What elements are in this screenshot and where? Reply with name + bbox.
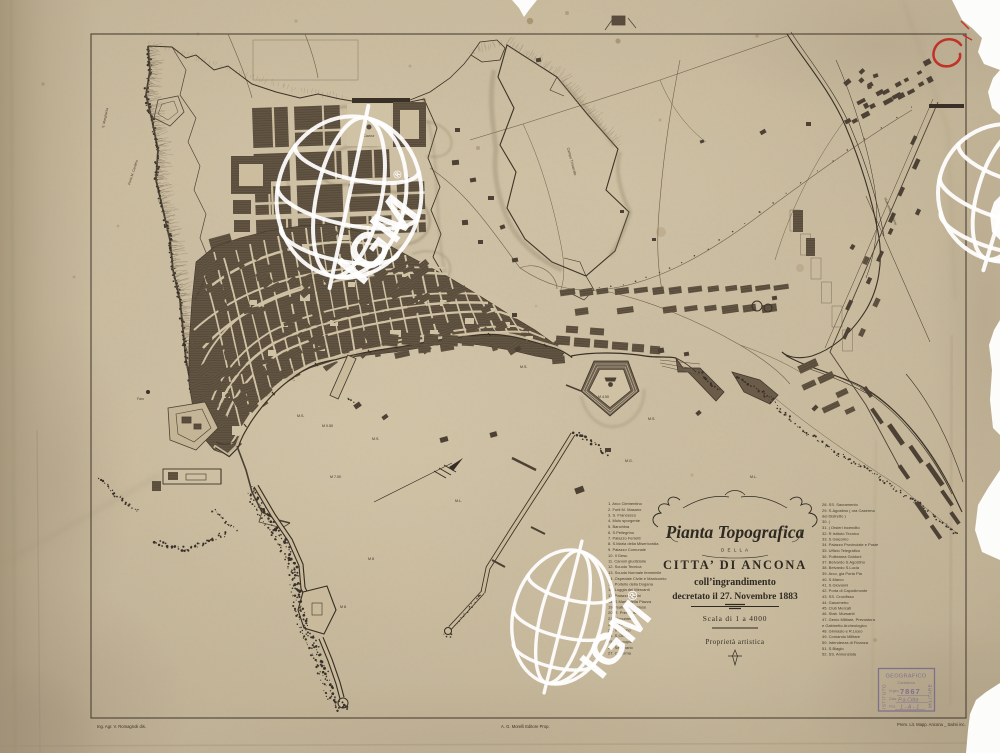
svg-text:N.gen.: N.gen. bbox=[889, 689, 900, 693]
svg-text:12. Scuola Tecnica: 12. Scuola Tecnica bbox=[608, 564, 642, 569]
svg-text:50. Intendenza di Finanza: 50. Intendenza di Finanza bbox=[822, 640, 869, 645]
svg-text:M.L.: M.L. bbox=[455, 499, 462, 503]
svg-text:35. Uffizio Telegrafico: 35. Uffizio Telegrafico bbox=[822, 548, 861, 553]
svg-text:M 0.50: M 0.50 bbox=[322, 424, 333, 428]
svg-text:M 4.50: M 4.50 bbox=[598, 395, 609, 399]
svg-text:CITTA’ DI ANCONA: CITTA’ DI ANCONA bbox=[663, 558, 807, 572]
svg-text:M.S.: M.S. bbox=[297, 414, 304, 418]
svg-text:decretato il 27. Novembre 1883: decretato il 27. Novembre 1883 bbox=[672, 592, 798, 602]
svg-text:M 7.00: M 7.00 bbox=[330, 475, 341, 479]
svg-text:5. Banchina: 5. Banchina bbox=[608, 524, 630, 529]
svg-text:37. Belvardo S.Agostino: 37. Belvardo S.Agostino bbox=[822, 560, 866, 565]
svg-text:M 8: M 8 bbox=[368, 557, 374, 561]
svg-text:47. Genio Militare, Prevostura: 47. Genio Militare, Prevostura bbox=[822, 617, 876, 622]
svg-text:ISTITUTO: ISTITUTO bbox=[882, 684, 888, 709]
svg-text:MILITARE: MILITARE bbox=[928, 684, 934, 708]
svg-text:13. Scuola Normale femminile: 13. Scuola Normale femminile bbox=[608, 570, 662, 575]
svg-text:Scala di 1 a 4000: Scala di 1 a 4000 bbox=[703, 614, 768, 623]
svg-text:Pianta Topografica: Pianta Topografica bbox=[665, 522, 805, 542]
svg-text:M.S.: M.S. bbox=[372, 437, 379, 441]
svg-text:14. Ospedale Civile e Manicomi: 14. Ospedale Civile e Manicomio bbox=[608, 576, 667, 581]
svg-text:43. SS. Crocifisso: 43. SS. Crocifisso bbox=[822, 594, 855, 599]
svg-text:Pos.: Pos. bbox=[889, 705, 896, 709]
svg-text:10. Il Gesu: 10. Il Gesu bbox=[608, 553, 627, 558]
svg-text:6. S.Pellegrino: 6. S.Pellegrino bbox=[608, 530, 635, 535]
svg-text:52. SS. Annunziata: 52. SS. Annunziata bbox=[822, 652, 857, 657]
svg-text:GEOGRAFICO: GEOGRAFICO bbox=[886, 674, 927, 680]
svg-text:46. Stab. Mursanti: 46. Stab. Mursanti bbox=[822, 611, 855, 616]
svg-text:48. Ginnasio e R.Liceo: 48. Ginnasio e R.Liceo bbox=[822, 629, 863, 634]
svg-text:42. Porta di Capodimonte: 42. Porta di Capodimonte bbox=[822, 588, 868, 593]
svg-text:M.G.: M.G. bbox=[625, 459, 633, 463]
svg-text:15. Portello della Dogana: 15. Portello della Dogana bbox=[608, 582, 654, 587]
svg-text:8. S.Maria della Misericordia: 8. S.Maria della Misericordia bbox=[608, 541, 659, 546]
svg-text:2. Forti M. Masano: 2. Forti M. Masano bbox=[608, 507, 642, 512]
svg-text:A. G. Morelli Editore Prop.: A. G. Morelli Editore Prop. bbox=[501, 724, 550, 729]
svg-text:49. Comando Militare: 49. Comando Militare bbox=[822, 634, 861, 639]
svg-text:39. Arco, gia Porta Pia: 39. Arco, gia Porta Pia bbox=[822, 571, 863, 576]
svg-text:Proprietà artistica: Proprietà artistica bbox=[705, 638, 764, 646]
svg-text:7. Palazzo Ferretti: 7. Palazzo Ferretti bbox=[608, 536, 641, 541]
svg-text:36. Politeama Goldoni: 36. Politeama Goldoni bbox=[822, 554, 861, 559]
svg-text:Ing. Agr. V. Romagnoli dis.: Ing. Agr. V. Romagnoli dis. bbox=[97, 724, 146, 729]
svg-text:38. Belvardo S.Lucia: 38. Belvardo S.Lucia bbox=[822, 565, 860, 570]
svg-text:Clas.: Clas. bbox=[889, 697, 897, 701]
svg-text:del Distretto ): del Distretto ) bbox=[822, 514, 846, 519]
svg-text:1. Arco Clementino: 1. Arco Clementino bbox=[608, 501, 643, 506]
svg-text:29. S.Agostino ( ora Caserma: 29. S.Agostino ( ora Caserma bbox=[822, 508, 875, 513]
svg-text:31. | Orsieri incendito: 31. | Orsieri incendito bbox=[822, 525, 860, 530]
svg-text:33. S.Giacomo: 33. S.Giacomo bbox=[822, 537, 849, 542]
svg-text:M.S.: M.S. bbox=[648, 417, 655, 421]
svg-text:e Gabinetto Archeologico: e Gabinetto Archeologico bbox=[822, 623, 867, 628]
svg-text:41. S.Giovanni: 41. S.Giovanni bbox=[822, 583, 848, 588]
svg-text:Faro: Faro bbox=[137, 397, 144, 401]
svg-text:51. S.Biagio: 51. S.Biagio bbox=[822, 646, 844, 651]
svg-text:34. Palazzo Provinciale e Post: 34. Palazzo Provinciale e Poste bbox=[822, 542, 879, 547]
svg-text:3. S. Francesco: 3. S. Francesco bbox=[608, 513, 637, 518]
svg-text:30. |: 30. | bbox=[822, 519, 830, 524]
svg-text:32. R.Istituto Tecnico: 32. R.Istituto Tecnico bbox=[822, 531, 860, 536]
svg-text:Prem. Lit. Mapp. Ancona _ Salm: Prem. Lit. Mapp. Ancona _ Salmi inc. bbox=[897, 722, 966, 727]
svg-text:M.S.: M.S. bbox=[520, 365, 527, 369]
svg-text:28. SS. Sacramento: 28. SS. Sacramento bbox=[822, 502, 859, 507]
svg-text:7867: 7867 bbox=[900, 687, 921, 696]
svg-text:Cavour: Cavour bbox=[364, 134, 376, 138]
svg-text:coll’ingrandimento: coll’ingrandimento bbox=[694, 577, 776, 588]
svg-text:M.L.: M.L. bbox=[750, 475, 757, 479]
svg-text:11. Canoni giudiziarie: 11. Canoni giudiziarie bbox=[608, 559, 647, 564]
svg-text:9. Palazzo Comunale: 9. Palazzo Comunale bbox=[608, 547, 647, 552]
svg-text:M 8: M 8 bbox=[340, 605, 346, 609]
svg-text:40. S.Marco: 40. S.Marco bbox=[822, 577, 844, 582]
svg-text:45. Club Mercati: 45. Club Mercati bbox=[822, 606, 851, 611]
svg-text:44. Gasometro: 44. Gasometro bbox=[822, 600, 849, 605]
svg-text:4. Molo sporgente: 4. Molo sporgente bbox=[608, 518, 641, 523]
svg-text:D E L L A: D E L L A bbox=[721, 548, 749, 553]
svg-text:Cartoteca: Cartoteca bbox=[897, 680, 915, 685]
